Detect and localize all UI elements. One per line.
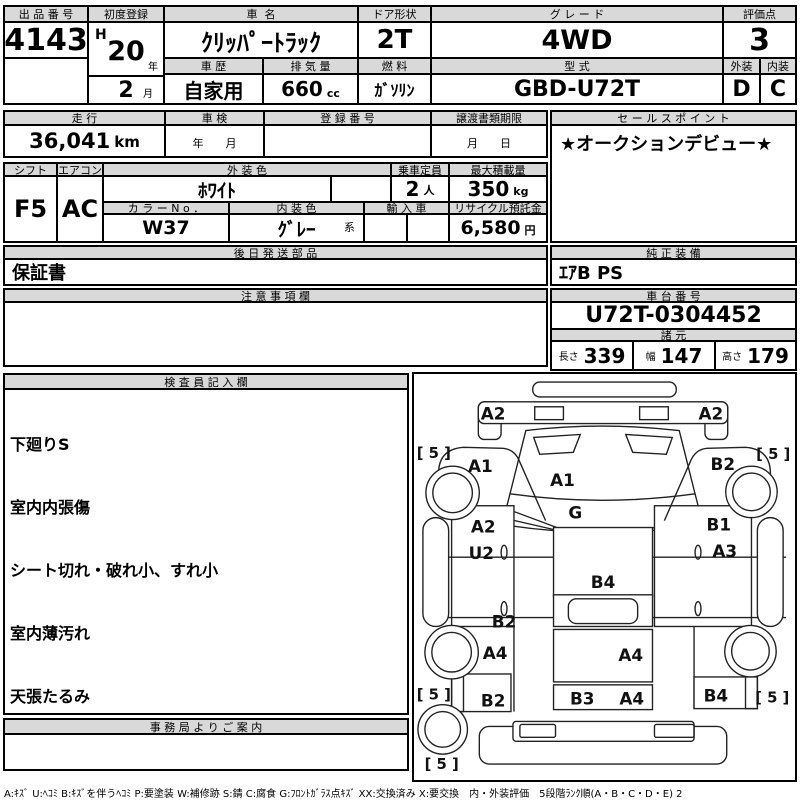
tread-depth-mark: [ 5 ] [755,690,789,707]
exterior-grade-value: D [722,73,761,105]
damage-code: A4 [618,645,643,665]
damage-code: A1 [550,470,575,490]
displacement-value: 660 cc [262,73,359,105]
registration-number-value [263,124,432,158]
max-load-value: 350 kg [448,175,548,203]
tread-depth-mark: [ 5 ] [425,756,459,773]
mileage-unit: km [114,133,140,156]
damage-code: G [568,503,582,523]
aircon-value: AC [56,175,104,243]
max-load-unit: kg [513,185,528,201]
later-parts-value: 保証書 [3,258,548,286]
tread-depth-mark: [ 5 ] [417,687,451,704]
damage-code: A4 [619,689,644,709]
recycle-deposit-value: 6,580 円 [448,213,548,243]
inspector-notes: 下廻りS 室内内張傷 シート切れ・破れ小、すれ小 室内薄汚れ 天張たるみ 外装小… [3,388,409,715]
import-car-cell-1 [363,213,408,243]
mileage-value: 36,041 km [3,124,166,158]
side-tire-right [757,518,783,627]
lot-number-value: 4143 [3,21,89,59]
max-load-number: 350 [468,177,510,201]
shaken-value: 年 月 [164,124,265,158]
damage-code: A2 [481,404,506,424]
spec-length-value: 339 [584,344,626,368]
tread-depth-mark: [ 5 ] [756,446,790,463]
damage-code: B2 [492,611,517,631]
damage-code: B4 [704,686,729,706]
damage-code-legend: A:ｷｽﾞ U:ﾍｺﾐ B:ｷｽﾞを伴うﾍｺﾐ P:要塗装 W:補修跡 S:錆 … [4,785,798,800]
damage-diagram-box: A2 A2 A1 A1 B2 G A2 U2 B1 A3 B4 B2 A4 A4… [412,372,797,782]
interior-color-name: ｸﾞﾚｰ [277,215,315,242]
side-tire-left [423,518,449,627]
reg-year-unit: 年 [148,58,158,73]
spec-width-label: 幅 [646,348,656,363]
tread-depth-mark: [ 5 ] [417,445,451,462]
interior-color-suffix: 系 [344,219,355,235]
displacement-unit: cc [327,87,340,103]
shift-value: F5 [3,175,58,243]
reg-month-unit: 月 [143,85,153,100]
recycle-deposit-unit: 円 [525,222,536,241]
fuel-value: ｶﾞｿﾘﾝ [357,73,432,105]
model-code-value: GBD-U72T [430,73,724,105]
inspector-note-line: 室内薄汚れ [10,623,402,644]
wheel-rear-right [725,625,776,676]
mileage-number: 36,041 [29,129,110,153]
transfer-deadline-value: 月 日 [430,124,548,158]
import-car-cell-2 [406,213,450,243]
damage-code: B4 [591,572,616,592]
capacity-number: 2 [406,177,420,201]
damage-code: A2 [699,404,724,424]
inspector-note-line: 天張たるみ [10,686,402,707]
inspector-note-line: シート切れ・破れ小、すれ小 [10,560,402,581]
damage-code: A4 [483,643,508,663]
door-shape-value: 2T [357,21,432,59]
color-no-value: W37 [102,213,230,243]
recycle-deposit-number: 6,580 [460,217,520,239]
spec-height: 高さ 179 [714,340,797,371]
grade-value: 4WD [430,21,724,59]
reg-month: 2 [118,78,133,103]
inspector-note-line: 室内内張傷 [10,497,402,518]
damage-code: B3 [570,689,595,709]
spec-length-label: 長さ [559,348,579,363]
damage-code: A2 [471,516,496,536]
auction-sheet: 出 品 番 号 4143 初度登録 H 20 年 2 月 車 名 ｸﾘｯﾊﾟｰﾄ… [0,0,800,800]
damage-code: B1 [707,514,732,534]
spec-length: 長さ 339 [550,340,634,371]
wheel-rear-left [425,625,478,678]
displacement-number: 660 [281,77,323,101]
spec-width-value: 147 [661,344,703,368]
interior-color-value: ｸﾞﾚｰ 系 [228,213,365,243]
oem-equipment-value: ｴｱB PS [550,258,797,286]
history-value: 自家用 [163,73,264,105]
damage-code: U2 [469,543,494,563]
damage-code: A1 [468,456,493,476]
capacity-value: 2 人 [390,175,450,203]
roof-bar [533,382,676,397]
damage-code: B2 [711,454,736,474]
caution-body [3,301,548,367]
spec-height-value: 179 [747,344,789,368]
interior-grade-value: C [759,73,797,105]
door-panel-right [654,506,751,627]
exterior-color-value: ﾎﾜｲﾄ [102,175,332,203]
lot-number-empty [3,57,89,105]
exterior-color-empty [330,175,392,203]
spec-width: 幅 147 [632,340,716,371]
score-value: 3 [722,21,797,59]
vehicle-damage-diagram: A2 A2 A1 A1 B2 G A2 U2 B1 A3 B4 B2 A4 A4… [414,374,795,780]
capacity-unit: 人 [423,182,434,201]
era-letter: H [95,27,107,43]
front-bumper [478,402,727,424]
inspector-note-line: 下廻りS [10,434,402,455]
car-name-value: ｸﾘｯﾊﾟｰﾄﾗｯｸ [163,21,359,59]
reg-year: 20 [107,36,145,67]
damage-code: A3 [712,541,737,561]
first-registration-month: 2 月 [87,75,165,105]
office-notice-body [3,733,409,771]
first-registration-year: H 20 年 [87,21,165,77]
damage-code: B2 [481,691,506,711]
spec-height-label: 高さ [722,348,742,363]
chassis-number-value: U72T-0304452 [550,301,797,330]
sales-point-value: ★オークションデビュー★ [550,124,797,243]
